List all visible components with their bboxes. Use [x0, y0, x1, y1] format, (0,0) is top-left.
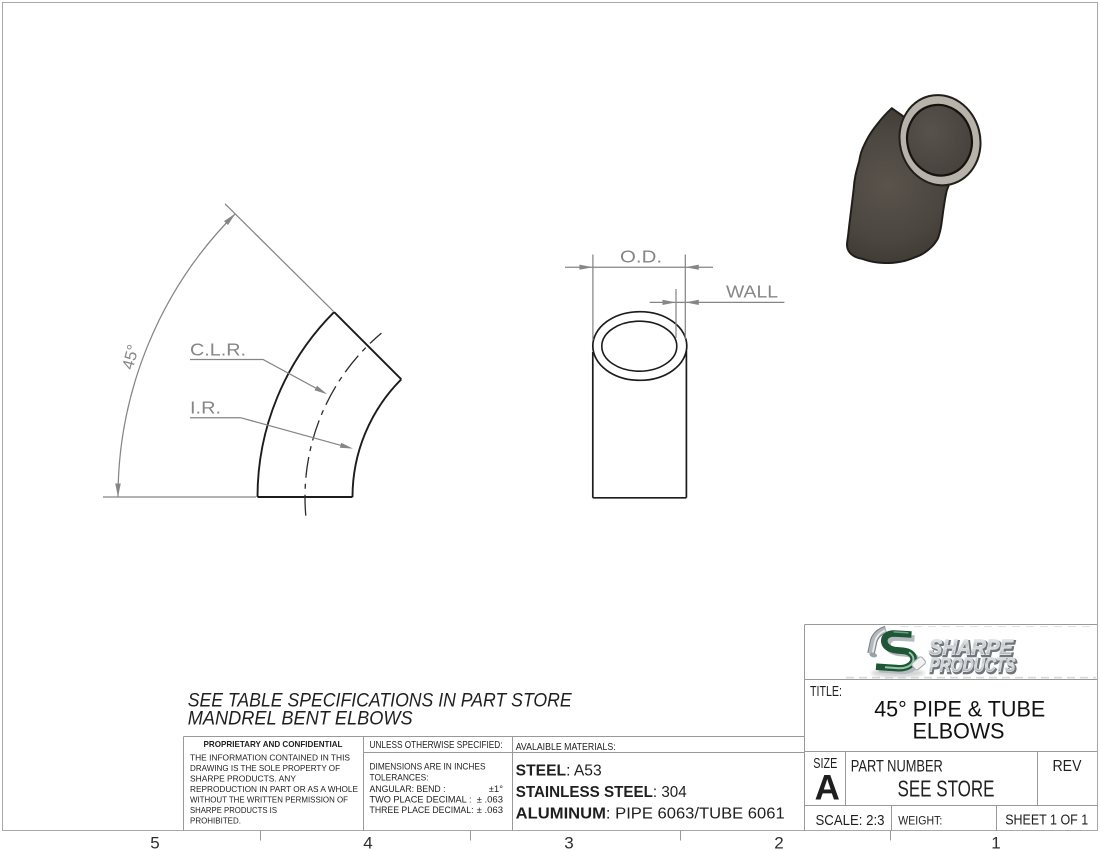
svg-text:SHARPE PRODUCTS IS: SHARPE PRODUCTS IS [190, 805, 277, 815]
svg-text:I.R.: I.R. [190, 398, 221, 418]
svg-text:TWO PLACE DECIMAL :: TWO PLACE DECIMAL : [370, 794, 472, 805]
svg-text:1: 1 [991, 834, 1000, 850]
svg-text:SEE STORE: SEE STORE [898, 776, 995, 802]
svg-text:THREE PLACE DECIMAL:: THREE PLACE DECIMAL: [370, 805, 474, 816]
svg-text:A: A [815, 769, 840, 808]
svg-text:2: 2 [774, 834, 783, 850]
svg-text:DIMENSIONS ARE IN INCHES: DIMENSIONS ARE IN INCHES [370, 761, 486, 772]
svg-text:±1°: ±1° [489, 784, 503, 795]
svg-text:3: 3 [564, 834, 573, 850]
svg-text:O.D.: O.D. [620, 247, 662, 267]
svg-text:SHEET 1 OF 1: SHEET 1 OF 1 [1005, 813, 1088, 829]
svg-text:ALUMINUM: PIPE 6063/TUBE 6061: ALUMINUM: PIPE 6063/TUBE 6061 [516, 805, 785, 822]
svg-text:± .063: ± .063 [477, 794, 503, 805]
svg-text:UNLESS OTHERWISE SPECIFIED:: UNLESS OTHERWISE SPECIFIED: [370, 740, 503, 751]
svg-text:TOLERANCES:: TOLERANCES: [370, 773, 429, 784]
svg-text:REV: REV [1053, 758, 1082, 775]
svg-text:STEEL: A53: STEEL: A53 [516, 762, 602, 779]
svg-text:SHARPE PRODUCTS. ANY: SHARPE PRODUCTS. ANY [190, 773, 296, 783]
svg-text:REPRODUCTION IN PART OR AS A W: REPRODUCTION IN PART OR AS A WHOLE [190, 784, 358, 794]
svg-text:WALL: WALL [726, 282, 778, 302]
svg-text:MANDREL BENT ELBOWS: MANDREL BENT ELBOWS [188, 708, 413, 730]
svg-text:PRODUCTS: PRODUCTS [929, 654, 1016, 676]
svg-text:WITHOUT THE WRITTEN PERMISSION: WITHOUT THE WRITTEN PERMISSION OF [190, 794, 348, 804]
svg-text:PROHIBITED.: PROHIBITED. [190, 815, 241, 825]
svg-text:THE INFORMATION CONTAINED IN T: THE INFORMATION CONTAINED IN THIS [190, 752, 350, 762]
svg-text:PROPRIETARY AND CONFIDENTIAL: PROPRIETARY AND CONFIDENTIAL [204, 739, 343, 749]
svg-text:± .063: ± .063 [477, 805, 503, 816]
svg-text:DRAWING IS THE SOLE PROPERTY O: DRAWING IS THE SOLE PROPERTY OF [190, 763, 340, 773]
svg-text:ELBOWS: ELBOWS [913, 718, 1005, 743]
svg-text:WEIGHT:: WEIGHT: [898, 815, 942, 827]
svg-text:SCALE: 2:3: SCALE: 2:3 [816, 812, 885, 829]
svg-text:TITLE:: TITLE: [810, 683, 842, 700]
svg-text:ANGULAR: BEND :: ANGULAR: BEND : [370, 784, 446, 795]
svg-text:C.L.R.: C.L.R. [190, 340, 246, 360]
svg-text:PART NUMBER: PART NUMBER [851, 757, 943, 775]
svg-text:STAINLESS STEEL: 304: STAINLESS STEEL: 304 [516, 784, 687, 801]
svg-text:5: 5 [150, 834, 159, 850]
svg-text:4: 4 [363, 834, 372, 850]
svg-text:AVALAIBLE MATERIALS:: AVALAIBLE MATERIALS: [516, 742, 616, 753]
